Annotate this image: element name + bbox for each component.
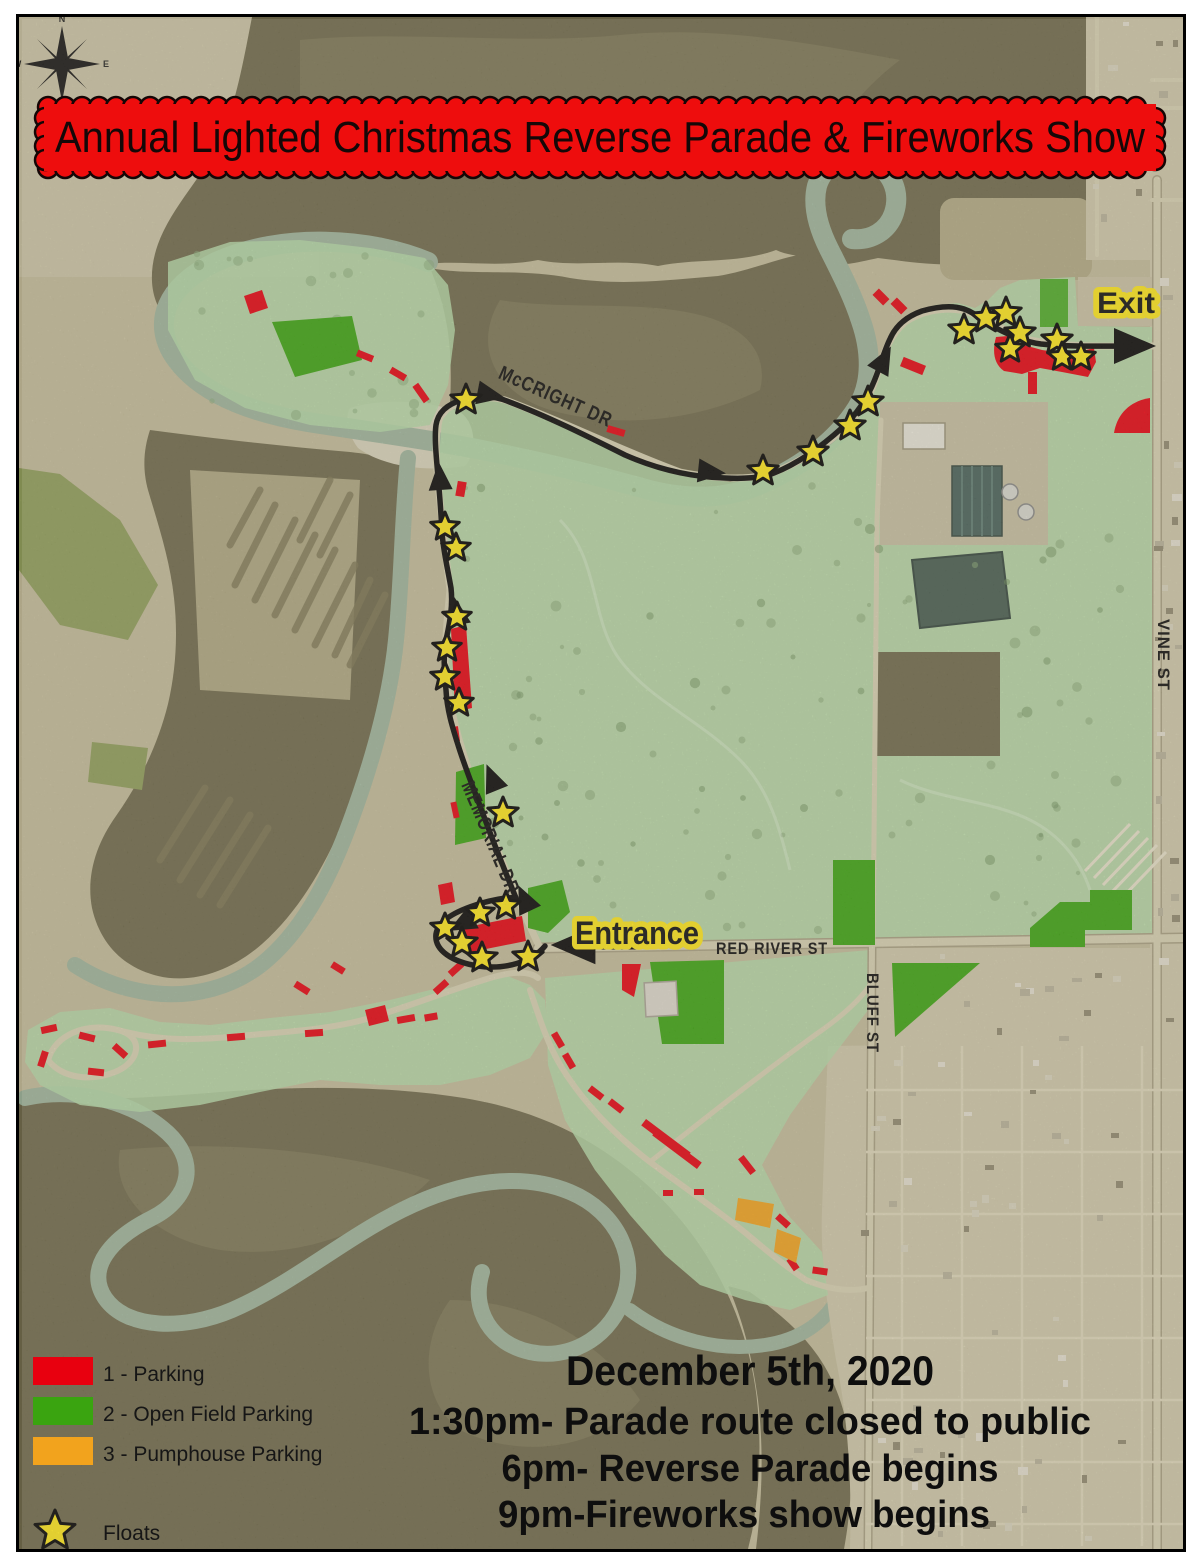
banner-title: Annual Lighted Christmas Reverse Parade …: [55, 113, 1145, 162]
schedule-line-2: 6pm- Reverse Parade begins: [502, 1448, 999, 1490]
legend-swatch-open-field: [33, 1397, 93, 1425]
schedule-line-3: 9pm-Fireworks show begins: [498, 1494, 990, 1536]
legend-label-pumphouse: 3 - Pumphouse Parking: [103, 1443, 322, 1466]
title-banner: Annual Lighted Christmas Reverse Parade …: [35, 97, 1165, 178]
parade-map-flyer: McCRIGHT DR MEMORIAL DR RED RIVER ST BLU…: [0, 0, 1200, 1556]
legend-swatch-parking: [33, 1357, 93, 1385]
legend-label-floats: Floats: [103, 1522, 160, 1545]
legend-label-open-field: 2 - Open Field Parking: [103, 1403, 313, 1426]
legend-swatch-pumphouse: [33, 1437, 93, 1465]
map-canvas: McCRIGHT DR MEMORIAL DR RED RIVER ST BLU…: [0, 0, 1200, 1556]
schedule-line-1: 1:30pm- Parade route closed to public: [409, 1401, 1091, 1443]
event-date: December 5th, 2020: [566, 1347, 934, 1394]
grain-overlay-light: [22, 19, 1186, 1551]
legend-label-parking: 1 - Parking: [103, 1363, 205, 1386]
